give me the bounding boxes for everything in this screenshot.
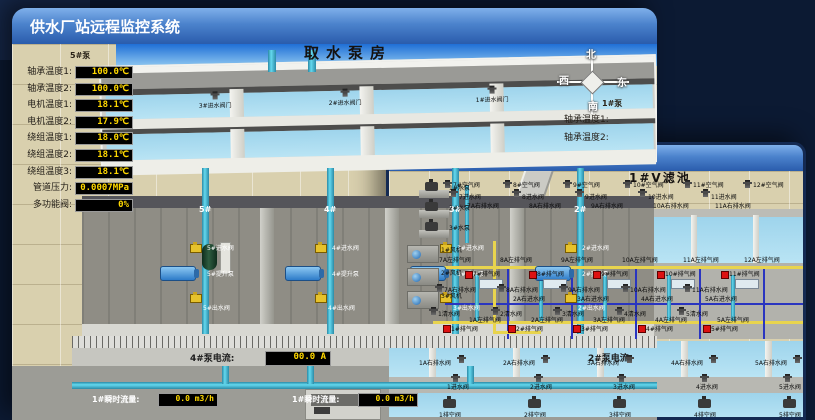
panel-label: 管道压力:	[14, 184, 72, 193]
drain-valve-label: 5A右排水阀	[755, 361, 787, 367]
scene-title: 取水泵房	[304, 46, 392, 61]
bay-inlet-valve-icon[interactable]	[190, 244, 202, 253]
gallery-blue-pipe	[445, 303, 803, 305]
drain-valve-icon[interactable]	[711, 355, 716, 363]
cell-divider	[765, 341, 772, 377]
red-air-valve-icon[interactable]	[638, 325, 646, 333]
pump-unit[interactable]	[419, 230, 449, 238]
drain-valve-label: 1A右排水阀	[419, 361, 451, 367]
side-panel-label: 轴承温度1:	[564, 116, 609, 125]
wash-pump-icon[interactable]	[613, 399, 626, 408]
hall-apron	[82, 324, 654, 336]
drain-valve-icon[interactable]	[543, 355, 548, 363]
inlet-valve-icon[interactable]	[785, 374, 790, 382]
panel-header: 5#泵	[70, 52, 90, 60]
red-air-valve-icon[interactable]	[703, 325, 711, 333]
panel-value-led: 100.0℃	[75, 83, 133, 96]
red-air-valve-icon[interactable]	[657, 271, 665, 279]
cell-divider	[681, 341, 688, 377]
pump-unit-label: 2#水泵	[449, 206, 470, 212]
pump-measure-panel: 5#泵 轴承温度1:100.0℃轴承温度2:100.0℃电机温度1:18.1℃电…	[12, 44, 142, 234]
inlet-valve-label: 11进水阀	[711, 195, 737, 201]
panel-value-led: 0%	[75, 199, 133, 212]
current-led: 00.0 A	[265, 351, 331, 366]
exhaust-valve-label: 11A左排气阀	[683, 258, 719, 264]
empty-valve-label: 4排空阀	[694, 413, 716, 417]
clean-water-valve-icon[interactable]	[617, 307, 622, 315]
inlet-valve-icon[interactable]	[640, 189, 645, 197]
clean-water-valve-icon[interactable]	[431, 307, 436, 315]
drain-valve-icon[interactable]	[627, 355, 632, 363]
inlet-valve-icon[interactable]	[703, 189, 708, 197]
empty-valve-label: 5排空阀	[779, 413, 801, 417]
red-air-valve-label: 1#排气阀	[451, 327, 478, 333]
gallery-basin	[735, 279, 759, 289]
inlet-valve-label: 8进水阀	[522, 195, 544, 201]
panel-label: 电机温度2:	[14, 118, 72, 127]
wash-pump-icon[interactable]	[528, 399, 541, 408]
gallery-yellow-pipe-top	[433, 266, 803, 269]
intake-gate-valve-label: 1#进水阀门	[476, 97, 509, 104]
drain-valve-icon[interactable]	[459, 355, 464, 363]
red-air-valve-icon[interactable]	[508, 325, 516, 333]
air-valve-label: 10#空气阀	[633, 183, 664, 189]
inlet-valve-label: 7进水阀	[459, 195, 481, 201]
hall-back-wall	[82, 196, 654, 208]
exhaust-valve-label: 4A左排气阀	[655, 318, 687, 324]
inlet-valve-label: 4进水阀	[696, 385, 718, 391]
panel-value-led: 0.0007MPa	[75, 182, 133, 195]
panel-value-led: 100.0℃	[75, 66, 133, 79]
clean-water-valve-label: 2清水阀	[500, 312, 522, 318]
drain-valve-label: 4A右排水阀	[671, 361, 703, 367]
basin-pier	[490, 123, 505, 155]
inlet-valve-label: 9进水阀	[585, 195, 607, 201]
inlet-valve-icon[interactable]	[536, 374, 541, 382]
red-air-valve-label: 8#排气阀	[537, 272, 564, 278]
intake-gate-valve-label: 3#进水阀门	[199, 103, 232, 110]
exhaust-valve-label: 2A左排气阀	[531, 318, 563, 324]
main-pipe	[72, 382, 657, 389]
cross-inlet-valve-label: 5A右进水阀	[705, 297, 737, 303]
pump-unit-label: 3#水泵	[449, 226, 470, 232]
intake-gate-valve-icon[interactable]	[212, 91, 217, 99]
red-air-valve-label: 5#排气阀	[711, 327, 738, 333]
exhaust-valve-label: 3A左排气阀	[593, 318, 625, 324]
inlet-valve-label: 5进水阀	[779, 385, 801, 391]
air-valve-icon[interactable]	[745, 180, 750, 188]
branch-pipe	[467, 366, 474, 384]
exhaust-valve-label: 5A左排气阀	[717, 318, 749, 324]
bay-number-label: 4#	[324, 206, 336, 214]
empty-valve-label: 3排空阀	[609, 413, 631, 417]
bay-outlet-valve-icon[interactable]	[565, 294, 577, 303]
inlet-valve-icon[interactable]	[702, 374, 707, 382]
drain-valve-icon[interactable]	[795, 355, 800, 363]
panel-label: 绕组温度2:	[14, 151, 72, 160]
drain-valve-label: 10A右排水阀	[630, 288, 666, 294]
flow-led: 0.0 m3/h	[358, 393, 418, 407]
red-air-valve-label: 4#排气阀	[646, 327, 673, 333]
cell-divider	[753, 215, 759, 263]
branch-pipe	[222, 366, 229, 384]
red-air-valve-icon[interactable]	[573, 325, 581, 333]
drain-valve-icon[interactable]	[499, 284, 504, 292]
compass-north-label: 北	[586, 46, 596, 61]
red-air-valve-icon[interactable]	[443, 325, 451, 333]
inlet-valve-icon[interactable]	[619, 374, 624, 382]
drain-valve-icon[interactable]	[623, 284, 628, 292]
clean-water-valve-label: 1清水阀	[438, 312, 460, 318]
exhaust-valve-label: 8A左排气阀	[500, 258, 532, 264]
cross-inlet-valve-label: 3A右进水阀	[577, 297, 609, 303]
compass-rose	[580, 70, 604, 94]
riser-pipe	[268, 50, 276, 72]
flow-led: 0.0 m3/h	[158, 393, 218, 407]
inlet-valve-label: 3进水阀	[613, 385, 635, 391]
drain-valve-label: 8A右排水阀	[506, 288, 538, 294]
bay-number-label: 2#	[574, 206, 586, 214]
flow-label: 1#瞬时流量:	[292, 396, 339, 404]
drain-valve-label: 7A右排水阀	[467, 204, 499, 210]
side-panel-label: 轴承温度2:	[564, 134, 609, 143]
compass-east-label: 东	[617, 74, 627, 89]
red-air-valve-label: 7#排气阀	[473, 272, 500, 278]
bay-inlet-valve-label: 5#进水阀	[207, 246, 234, 252]
air-valve-icon[interactable]	[505, 180, 510, 188]
desktop: 供水厂站远程监控系统 取水泵房 3#进水	[0, 0, 815, 420]
pump-unit-icon[interactable]	[425, 202, 438, 211]
wash-pump-icon[interactable]	[698, 399, 711, 408]
red-air-valve-label: 11#排气阀	[729, 272, 760, 278]
gallery-blue-riser	[699, 269, 701, 339]
red-air-valve-icon[interactable]	[593, 271, 601, 279]
drain-valve-label: 8A右排水阀	[529, 204, 561, 210]
bay-number-label: 5#	[199, 206, 211, 214]
basin-pier	[230, 129, 245, 161]
gallery-blue-riser	[635, 269, 637, 339]
inlet-valve-icon[interactable]	[514, 189, 519, 197]
pump-unit[interactable]	[419, 190, 449, 198]
pump-unit-icon[interactable]	[425, 182, 438, 191]
red-air-valve-icon[interactable]	[721, 271, 729, 279]
bay-pump-icon[interactable]	[160, 266, 196, 281]
window-title: 供水厂站远程监控系统	[30, 16, 180, 37]
bay-outlet-valve-icon[interactable]	[315, 294, 327, 303]
pump-unit-label: 1#水泵	[449, 186, 470, 192]
inlet-valve-label: 2进水阀	[530, 385, 552, 391]
red-air-valve-label: 9#排气阀	[601, 272, 628, 278]
drain-valve-icon[interactable]	[561, 284, 566, 292]
clean-water-valve-label: 5清水阀	[686, 312, 708, 318]
fan-unit-label: 1#风机	[441, 248, 462, 254]
bay-inlet-valve-icon[interactable]	[315, 244, 327, 253]
drain-valve-label: 11A右排水阀	[715, 204, 751, 210]
compass-south-label: 南	[588, 98, 598, 113]
air-valve-icon[interactable]	[685, 180, 690, 188]
cell-divider	[691, 215, 697, 263]
air-valve-icon[interactable]	[565, 180, 570, 188]
air-valve-label: 12#空气阀	[753, 183, 784, 189]
drain-valve-icon[interactable]	[437, 284, 442, 292]
exhaust-valve-label: 7A左排气阀	[439, 258, 471, 264]
drain-valve-label: 2A右排水阀	[503, 361, 535, 367]
pump-unit-icon[interactable]	[425, 222, 438, 231]
drain-valve-label: 9A右排水阀	[591, 204, 623, 210]
panel-label: 电机温度1:	[14, 101, 72, 110]
red-air-valve-icon[interactable]	[529, 271, 537, 279]
red-air-valve-icon[interactable]	[465, 271, 473, 279]
cross-inlet-valve-label: 2A右进水阀	[513, 297, 545, 303]
drain-valve-label: 11A右排水阀	[692, 288, 728, 294]
exhaust-valve-label: 9A左排气阀	[561, 258, 593, 264]
side-panel-header: 1#泵	[602, 100, 622, 108]
bay-outlet-valve-label: 4#出水阀	[328, 306, 355, 312]
intake-gate-valve-icon[interactable]	[342, 89, 347, 97]
empty-valve-label: 2排空阀	[524, 413, 546, 417]
clean-water-valve-icon[interactable]	[493, 307, 498, 315]
exhaust-valve-label: 10A左排气阀	[622, 258, 658, 264]
panel-value-led: 18.1℃	[75, 166, 133, 179]
titlebar-pump-house[interactable]: 供水厂站远程监控系统	[12, 8, 657, 44]
intake-gate-valve-icon[interactable]	[489, 86, 494, 94]
red-air-valve-label: 2#排气阀	[516, 327, 543, 333]
cabinet-device	[314, 407, 330, 414]
bay-inlet-valve-label: 2#进水阀	[582, 246, 609, 252]
fan-unit-label: 3#风机	[441, 294, 462, 300]
basin-pier	[360, 126, 375, 158]
air-valve-label: 11#空气阀	[693, 183, 724, 189]
gallery-blue-riser	[763, 269, 765, 339]
panel-label: 轴承温度2:	[14, 85, 72, 94]
drain-valve-label: 3A右排水阀	[587, 361, 619, 367]
drain-valve-icon[interactable]	[685, 284, 690, 292]
bay-inlet-valve-icon[interactable]	[565, 244, 577, 253]
current-label: 4#泵电流:	[190, 355, 234, 364]
bay-pump-label: 4#提升泵	[332, 272, 359, 278]
wash-pump-icon[interactable]	[783, 399, 796, 408]
wash-pump-icon[interactable]	[443, 399, 456, 408]
pump-unit[interactable]	[419, 210, 449, 218]
panel-value-led: 18.1℃	[75, 149, 133, 162]
exhaust-valve-label: 1A左排气阀	[469, 318, 501, 324]
exhaust-valve-label: 12A左排气阀	[744, 258, 780, 264]
red-air-valve-label: 10#排气阀	[665, 272, 696, 278]
air-valve-icon[interactable]	[625, 180, 630, 188]
bay-outlet-valve-label: 5#出水阀	[203, 306, 230, 312]
drain-valve-label: 9A右排水阀	[568, 288, 600, 294]
cross-inlet-valve-label: 4A右进水阀	[641, 297, 673, 303]
panel-label: 轴承温度1:	[14, 68, 72, 77]
panel-label: 绕组温度1:	[14, 134, 72, 143]
bay-outlet-valve-icon[interactable]	[190, 294, 202, 303]
panel-value-led: 17.9℃	[75, 116, 133, 129]
fan-unit-label: 2#风机	[441, 271, 462, 277]
panel-value-led: 18.1℃	[75, 99, 133, 112]
panel-label: 多功能阀:	[14, 201, 72, 210]
clean-water-valve-icon[interactable]	[555, 307, 560, 315]
intake-gate-valve-label: 2#进水阀门	[329, 100, 362, 107]
railing	[72, 336, 657, 348]
inlet-valve-icon[interactable]	[453, 374, 458, 382]
bay-inlet-valve-label: 4#进水阀	[332, 246, 359, 252]
inlet-valve-label: 1进水阀	[447, 385, 469, 391]
inlet-valve-icon[interactable]	[577, 189, 582, 197]
red-air-valve-label: 3#排气阀	[581, 327, 608, 333]
panel-label: 绕组温度3:	[14, 168, 72, 177]
fan-unit[interactable]	[407, 268, 439, 286]
inlet-valve-label: 10进水阀	[648, 195, 674, 201]
clean-water-valve-icon[interactable]	[679, 307, 684, 315]
clean-water-valve-label: 4清水阀	[624, 312, 646, 318]
hall-column	[260, 208, 274, 324]
panel-value-led: 18.0℃	[75, 132, 133, 145]
bay-pump-label: 5#提升泵	[207, 272, 234, 278]
empty-valve-label: 1排空阀	[439, 413, 461, 417]
drain-valve-label: 10A右排水阀	[653, 204, 689, 210]
compass-west-label: 西	[559, 72, 569, 87]
flow-label: 1#瞬时流量:	[92, 396, 139, 404]
clean-water-valve-label: 3清水阀	[562, 312, 584, 318]
branch-pipe	[307, 366, 314, 384]
hall-column	[385, 208, 399, 324]
fan-unit[interactable]	[407, 245, 439, 263]
bay-pump-icon[interactable]	[285, 266, 321, 281]
